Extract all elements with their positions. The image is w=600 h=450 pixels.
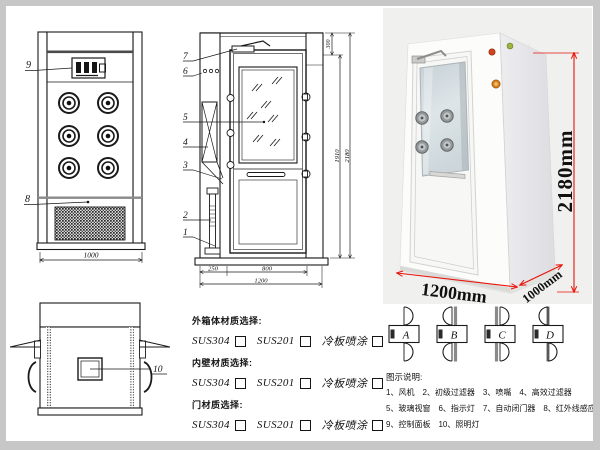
legend-item: 5、玻璃视窗 — [386, 403, 430, 414]
material-group-title: 内壁材质选择: — [192, 356, 384, 369]
legend-item: 4、高效过滤器 — [519, 387, 571, 398]
legend-item: 2、初级过滤器 — [422, 387, 474, 398]
part-label: 5 — [183, 113, 188, 123]
material-option-checkbox[interactable] — [235, 378, 246, 389]
door-type-d: D — [529, 304, 567, 364]
indicator-light-red — [489, 49, 495, 55]
air-return-grille — [55, 207, 125, 240]
legend-panel: 图示说明: 1、风机2、初级过滤器3、喷嘴4、高效过滤器5、玻璃视窗6、指示灯7… — [386, 371, 594, 435]
indicator-light-green — [507, 43, 513, 49]
material-option-checkbox[interactable] — [235, 336, 246, 347]
side-view-drawing: 7 6 5 4 3 2 1 300 1910 2180 250 800 1200 — [175, 20, 380, 310]
material-group-title: 门材质选择: — [192, 398, 384, 411]
door-closer — [232, 46, 254, 52]
part-label: 4 — [183, 138, 188, 148]
material-option: SUS201 — [257, 377, 311, 389]
material-options-row: SUS304SUS201冷板喷涂 — [192, 375, 384, 391]
dimension-label: 1200 — [254, 278, 268, 285]
material-group: 门材质选择:SUS304SUS201冷板喷涂 — [192, 398, 384, 433]
material-option-label: 冷板喷涂 — [322, 417, 368, 433]
material-group: 外箱体材质选择:SUS304SUS201冷板喷涂 — [192, 314, 384, 349]
material-option-label: SUS201 — [257, 377, 295, 389]
photo-dim-height: 2180mm — [553, 130, 577, 213]
legend-row: 1、风机2、初级过滤器3、喷嘴4、高效过滤器 — [386, 387, 594, 398]
door-type-b: B — [433, 304, 471, 364]
front-view-drawing: 9 8 1000 — [20, 25, 170, 270]
part-label: 2 — [183, 211, 188, 221]
material-option: 冷板喷涂 — [322, 333, 384, 349]
legend-rows: 1、风机2、初级过滤器3、喷嘴4、高效过滤器5、玻璃视窗6、指示灯7、自动闭门器… — [386, 387, 594, 430]
door-type-a: A — [385, 304, 423, 364]
material-option: SUS201 — [257, 335, 311, 347]
dimension-label: 250 — [208, 266, 219, 273]
dimension-label: 1910 — [334, 149, 341, 163]
material-option-label: SUS304 — [192, 377, 230, 389]
dimension-label: 800 — [262, 266, 273, 273]
legend-item: 6、指示灯 — [438, 403, 474, 414]
material-group: 内壁材质选择:SUS304SUS201冷板喷涂 — [192, 356, 384, 391]
material-option-checkbox[interactable] — [372, 378, 383, 389]
part-label: 6 — [183, 67, 188, 77]
materials-panel: 外箱体材质选择:SUS304SUS201冷板喷涂内壁材质选择:SUS304SUS… — [192, 314, 384, 440]
material-option-label: SUS201 — [257, 335, 295, 347]
part-label: 9 — [26, 60, 31, 71]
legend-item: 9、控制面板 — [386, 419, 430, 430]
dimension-label: 300 — [326, 40, 332, 50]
material-option: SUS304 — [192, 419, 246, 431]
material-option-checkbox[interactable] — [300, 378, 311, 389]
door-type-letter: D — [545, 330, 554, 342]
material-option: SUS304 — [192, 335, 246, 347]
legend-item: 8、红外线感应器 — [543, 403, 600, 414]
door-type-letter: C — [498, 330, 506, 342]
dimension-label: 2180 — [344, 149, 351, 163]
material-option-checkbox[interactable] — [300, 420, 311, 431]
material-options-row: SUS304SUS201冷板喷涂 — [192, 417, 384, 433]
material-option-label: SUS304 — [192, 419, 230, 431]
legend-title: 图示说明: — [386, 371, 594, 383]
material-option-label: 冷板喷涂 — [322, 375, 368, 391]
legend-item: 7、自动闭门器 — [483, 403, 535, 414]
air-shower-photo: 2180mm 1200mm 1000mm — [383, 8, 592, 304]
air-shower-spec-sheet: 9 8 1000 — [0, 0, 600, 450]
material-option-label: SUS304 — [192, 335, 230, 347]
material-option-checkbox[interactable] — [372, 420, 383, 431]
part-label: 7 — [183, 52, 189, 62]
top-view-drawing: 10 — [5, 295, 175, 430]
part-label: 10 — [153, 365, 163, 375]
material-option-checkbox[interactable] — [372, 336, 383, 347]
part-label: 1 — [183, 228, 188, 238]
material-option-label: SUS201 — [257, 419, 295, 431]
material-option: SUS201 — [257, 419, 311, 431]
legend-row: 9、控制面板10、照明灯 — [386, 419, 594, 430]
door-type-letter: B — [451, 330, 458, 342]
material-option: 冷板喷涂 — [322, 417, 384, 433]
part-label: 3 — [182, 161, 188, 171]
material-group-title: 外箱体材质选择: — [192, 314, 384, 327]
door-outline — [230, 50, 306, 253]
legend-item: 3、喷嘴 — [483, 387, 511, 398]
door-type-icons: ABCD — [385, 304, 585, 364]
dimension-label: 1000 — [84, 251, 99, 260]
fan-column — [210, 194, 216, 248]
material-option-checkbox[interactable] — [300, 336, 311, 347]
part-label: 8 — [25, 194, 30, 205]
legend-row: 5、玻璃视窗6、指示灯7、自动闭门器8、红外线感应器 — [386, 403, 594, 414]
legend-item: 1、风机 — [386, 387, 414, 398]
material-option-label: 冷板喷涂 — [322, 333, 368, 349]
material-option: 冷板喷涂 — [322, 375, 384, 391]
door-type-letter: A — [402, 330, 410, 342]
material-option: SUS304 — [192, 377, 246, 389]
material-option-checkbox[interactable] — [235, 420, 246, 431]
material-options-row: SUS304SUS201冷板喷涂 — [192, 333, 384, 349]
legend-item: 10、照明灯 — [438, 419, 479, 430]
door-type-c: C — [481, 304, 519, 364]
